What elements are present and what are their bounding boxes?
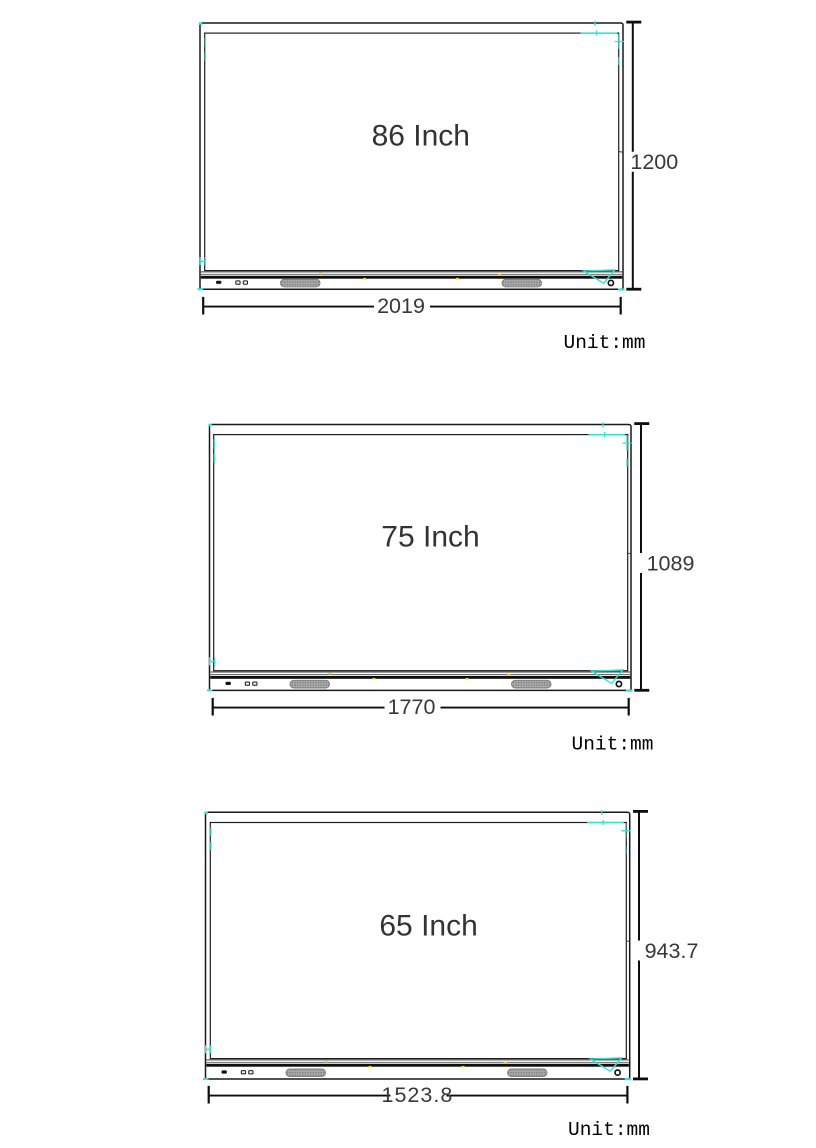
svg-text:75 Inch: 75 Inch (381, 521, 479, 554)
svg-text:Unit:mm: Unit:mm (572, 734, 654, 756)
svg-text:Unit:mm: Unit:mm (568, 1119, 650, 1141)
svg-text:86 Inch: 86 Inch (372, 120, 470, 153)
svg-text:1770: 1770 (388, 695, 436, 719)
svg-text:2019: 2019 (377, 294, 425, 318)
svg-text:1089: 1089 (647, 551, 695, 575)
svg-text:65 Inch: 65 Inch (379, 910, 477, 943)
svg-text:943.7: 943.7 (645, 939, 699, 963)
svg-text:1200: 1200 (630, 150, 678, 174)
svg-text:Unit:mm: Unit:mm (564, 332, 646, 354)
svg-text:1523.8: 1523.8 (382, 1083, 454, 1107)
